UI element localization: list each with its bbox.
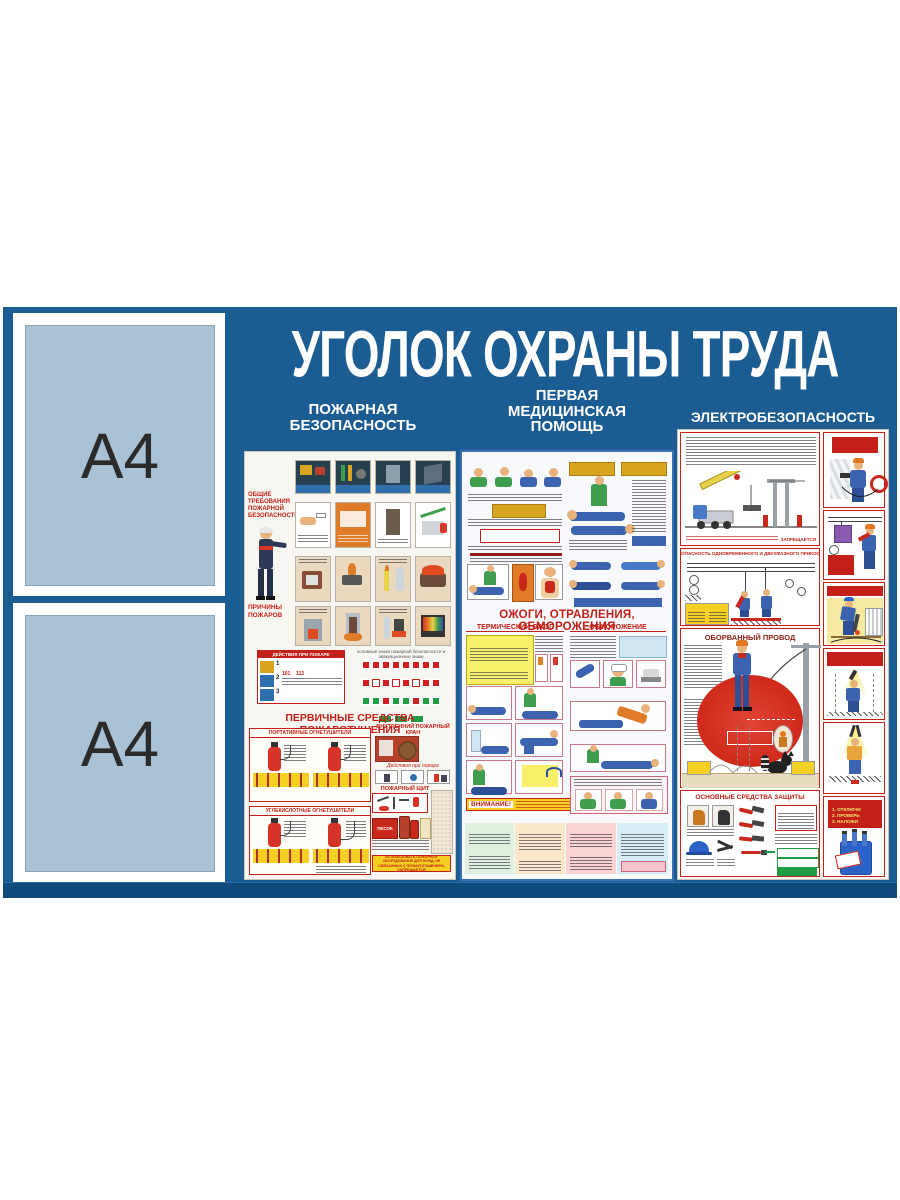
co2-extinguishers-label: УГЛЕКИСЛОТНЫЕ ОГНЕТУШИТЕЛИ: [250, 807, 370, 816]
driller-scene: [828, 457, 882, 505]
glove-captions: [687, 829, 734, 836]
anatomy-picture: [512, 564, 534, 602]
voltage-curve: [709, 755, 759, 775]
medical-highlight-box: [492, 504, 546, 518]
medical-divider-bar: [470, 553, 562, 556]
section-header-fire-line2: БЕЗОПАСНОСТЬ: [262, 418, 444, 434]
frostbite-subheader: [570, 735, 666, 741]
frostbite-info-box: [619, 636, 667, 658]
worker-figure: [858, 527, 880, 573]
broken-wire-label: ОБОРВАННЫЙ ПРОВОД: [681, 633, 819, 642]
fire-barrel: [399, 816, 410, 839]
fire-general-requirements-label: ОБЩИЕ ТРЕБОВАНИЯ ПОЖАРНОЙ БЕЗОПАСНОСТИ: [248, 492, 294, 520]
fire-safety-poster[interactable]: ОБЩИЕ ТРЕБОВАНИЯ ПОЖАРНОЙ БЕЗОПАСНОСТИ П…: [245, 452, 455, 879]
fire-actions-text: [282, 662, 342, 672]
cpr-scene: [569, 478, 629, 536]
frostbite-pic-wide: [570, 744, 666, 772]
panel-warning-header: [832, 437, 878, 453]
section-header-fire-line1: ПОЖАРНАЯ: [262, 402, 444, 418]
board-bottom-strip: [3, 882, 897, 898]
section-header-medical: ПЕРВАЯ МЕДИЦИНСКАЯ ПОМОЩЬ: [475, 388, 659, 435]
info-column-orange: [515, 823, 565, 874]
fire-actions-header: ДЕЙСТВИЯ ПРИ ПОЖАРЕ: [272, 652, 329, 657]
fire-actions-pictogram: [260, 689, 274, 701]
fire-cause-tile: [375, 606, 411, 646]
extinguisher-callouts: [344, 745, 366, 763]
fire-shield-panel: [372, 793, 428, 813]
fire-signs-row-red: [350, 660, 452, 678]
green-tag: [777, 848, 819, 858]
fire-action-pic: [427, 770, 450, 784]
current-meter: [785, 579, 794, 588]
formula-box: [685, 603, 729, 625]
fire-action-step-number: 2: [276, 675, 279, 681]
first-aid-poster[interactable]: ОЖОГИ, ОТРАВЛЕНИЯ, ОБМОРОЖЕНИЯ ТЕРМИЧЕСК…: [462, 452, 672, 879]
airway-steps-pictures: [468, 466, 564, 492]
extinguisher-footnote: [316, 791, 366, 799]
portable-extinguishers-box: ПОРТАТИВНЫЕ ОГНЕТУШИТЕЛИ: [249, 728, 371, 802]
meter-symbol: [829, 545, 839, 555]
crane-caption: ЗАПРЕЩАЕТСЯ: [686, 534, 816, 544]
section-header-electrical: ЭЛЕКТРОБЕЗОПАСНОСТЬ: [676, 410, 890, 426]
fire-signs-row-mixed: [350, 678, 452, 696]
fire-signs-panel: основные знаки пожарной безопасности и э…: [350, 649, 452, 705]
fire-cause-tile: [335, 556, 371, 602]
rules-lines: 1. ОТКЛЮЧИ 2. ПРОВЕРЬ 3. НАЛОЖИ: [832, 807, 861, 825]
rules-box: 1. ОТКЛЮЧИ 2. ПРОВЕРЬ 3. НАЛОЖИ: [828, 800, 882, 828]
fire-rule-tile: [375, 460, 411, 494]
insulated-tools-icons: [739, 807, 773, 863]
section-header-fire: ПОЖАРНАЯ БЕЗОПАСНОСТЬ: [262, 402, 444, 433]
medical-step-header: [569, 462, 615, 476]
danger-sign: [791, 761, 815, 775]
danger-sign: [687, 761, 711, 775]
extinguisher-callouts: [346, 821, 366, 839]
two-phase-danger-panel: ОПАСНОСТЬ ОДНОВРЕМЕННОГО И ДВУХФАЗНОГО П…: [680, 548, 820, 626]
fire-phone-112: 112: [296, 671, 304, 677]
fire-action-step-number: 3: [276, 689, 279, 695]
medical-step-header: [621, 462, 667, 476]
burn-aid-pic: [515, 723, 563, 757]
a4-pocket-top-window: А4: [25, 325, 215, 586]
medical-blue-footer: [574, 598, 662, 607]
info-column-green: [465, 823, 514, 874]
recovery-positions: [569, 556, 667, 596]
two-phase-danger-label: ОПАСНОСТЬ ОДНОВРЕМЕННОГО И ДВУХФАЗНОГО П…: [681, 551, 819, 556]
crane-caption-prohibited: ЗАПРЕЩАЕТСЯ: [781, 537, 816, 542]
burn-aid-pic: [515, 686, 563, 720]
fire-rule-tile: [295, 502, 331, 548]
medical-text: [569, 540, 627, 552]
transformer-box: [834, 525, 852, 543]
step-voltage-tag: [727, 731, 773, 745]
extinguisher-callouts: [284, 745, 306, 763]
hydrant-instructions: [421, 736, 451, 760]
sand-row-captions: [372, 840, 429, 852]
fire-action-pic: [401, 770, 424, 784]
panel-warning-strip: [827, 586, 883, 596]
attention-label: ВНИМАНИЕ!: [469, 801, 513, 808]
protection-means-label: ОСНОВНЫЕ СРЕДСТВА ЗАЩИТЫ: [681, 794, 819, 801]
portable-extinguishers-label: ПОРТАТИВНЫЕ ОГНЕТУШИТЕЛИ: [250, 729, 370, 738]
fire-evacuation-tile: [335, 502, 371, 548]
frostbite-subheader: [570, 692, 666, 698]
fire-barrel: [410, 820, 419, 839]
crane-illustration: [685, 471, 817, 531]
fire-signs-caption: основные знаки пожарной безопасности и э…: [350, 649, 452, 659]
crane-panel: ЗАПРЕЩАЕТСЯ: [680, 432, 820, 546]
pliers-icon: [717, 845, 733, 852]
fire-shield-label: ПОЖАРНЫЙ ЩИТ: [375, 786, 435, 792]
green-tag: [777, 858, 819, 868]
medical-warning-box: [480, 529, 560, 543]
firefighter-figure: [251, 526, 291, 602]
fire-causes-label: ПРИЧИНЫ ПОЖАРОВ: [248, 604, 294, 619]
grounding-rules-panel: 1. ОТКЛЮЧИ 2. ПРОВЕРЬ 3. НАЛОЖИ: [823, 796, 885, 877]
extinguisher-usage-strip: [313, 849, 369, 863]
fire-actions-pictogram: [260, 675, 274, 687]
medical-scale-marks: [470, 558, 562, 562]
frostbite-pic: [570, 660, 600, 688]
fire-rule-tile: [295, 460, 331, 494]
fire-cause-tile: [295, 606, 331, 646]
fire-actions-pictogram: [260, 661, 274, 673]
section-header-medical-line3: ПОМОЩЬ: [475, 419, 659, 435]
fire-cause-tile: [335, 606, 371, 646]
current-meter: [797, 587, 806, 596]
crane-panel-text: [686, 437, 816, 467]
fire-cause-tile: [295, 556, 331, 602]
fire-rule-tile: [415, 460, 451, 494]
burn-text: [535, 636, 563, 652]
info-column-pink: [566, 823, 616, 874]
extinguisher-callouts: [284, 821, 306, 839]
fire-bottom-warning-text: ИСПОЛЬЗОВАТЬ ПОЖАРНОЕ ОБОРУДОВАНИЕ ДЛЯ Н…: [374, 855, 449, 872]
indoor-hydrant-label: ВНУТРЕННИЙ ПОЖАРНЫЙ КРАН: [375, 724, 451, 736]
coil-symbol: [689, 585, 699, 595]
extinguisher-usage-strip: [253, 773, 309, 787]
table-note: [775, 834, 817, 846]
fire-rule-tile: [415, 502, 451, 548]
panel-warning-box: [828, 555, 854, 575]
torso-organs-picture: [535, 564, 563, 600]
burn-symptoms-box: [466, 635, 534, 685]
fire-cause-tile: [415, 606, 451, 646]
sand-box-label: ПЕСОК: [377, 826, 393, 831]
burn-aid-pic: [515, 760, 563, 794]
frostbite-pic: [603, 660, 633, 688]
burn-aid-pic: [466, 686, 512, 720]
worker-figure: [759, 589, 773, 617]
frostbite-pic-wide: [570, 701, 666, 731]
platform-hatch: [731, 621, 781, 625]
standing-worker-figure: [729, 643, 755, 713]
thermal-burn-label: ТЕРМИЧЕСКИЙ ОЖОГ: [466, 624, 564, 632]
medical-text: [468, 519, 562, 527]
warm-drink-box: [570, 776, 668, 814]
ground-symbol: [685, 595, 701, 601]
step-voltage-text: [684, 645, 722, 689]
extinguisher-footnote: [316, 866, 366, 873]
frostbite-pic: [636, 660, 666, 688]
pliers-caption: [717, 859, 735, 866]
dielectric-glove-icon: [687, 805, 709, 827]
sand-texture-panel: [431, 790, 453, 854]
radius-arrow: [747, 719, 795, 720]
green-arrow: [765, 851, 775, 853]
green-tag-solid: [777, 868, 817, 876]
medical-blue-box: [632, 536, 666, 546]
worker-figure: [737, 591, 751, 617]
burn-degree-pics: [535, 654, 563, 682]
arc-flash-panel: [823, 722, 885, 794]
arc-flash-scene: [827, 726, 883, 786]
sand-box: ПЕСОК: [372, 818, 398, 839]
co2-extinguishers-box: УГЛЕКИСЛОТНЫЕ ОГНЕТУШИТЕЛИ: [249, 806, 371, 875]
inset-figure-oval: [773, 725, 793, 753]
fire-bottom-warning: ИСПОЛЬЗОВАТЬ ПОЖАРНОЕ ОБОРУДОВАНИЕ ДЛЯ Н…: [372, 855, 451, 872]
extinguisher-usage-strip: [313, 773, 369, 787]
board-title: УГОЛОК ОХРАНЫ ТРУДА: [294, 312, 835, 395]
section-header-electrical-line1: ЭЛЕКТРОБЕЗОПАСНОСТЬ: [676, 410, 890, 426]
rubber-glove-icon: [712, 805, 734, 827]
a4-pocket-top[interactable]: А4: [13, 313, 225, 596]
fire-action-step-number: 1: [276, 661, 279, 667]
overhead-cable-panel: [823, 648, 885, 720]
fire-rule-tile: [375, 502, 411, 548]
frostbite-label: ОБМОРОЖЕНИЕ: [570, 624, 666, 632]
fire-cause-tile: [415, 556, 451, 602]
a4-label-top: А4: [81, 419, 159, 493]
rule-line-3: 3. НАЛОЖИ: [832, 819, 861, 825]
fire-canister: [420, 818, 431, 839]
transformer-panel: [823, 510, 885, 580]
panel-warning-strip: [827, 652, 883, 666]
extinguisher-footnote: [256, 791, 306, 799]
fire-actions-box: ДЕЙСТВИЯ ПРИ ПОЖАРЕ 1 2 3 101 112: [257, 650, 345, 704]
section-header-medical-line2: МЕДИЦИНСКАЯ: [475, 404, 659, 420]
drill-wall-panel: [823, 432, 885, 508]
electrical-safety-poster[interactable]: ЗАПРЕЩАЕТСЯ ОПАСНОСТЬ ОДНОВРЕМЕННОГО И Д…: [678, 430, 888, 879]
jackhammer-panel: [823, 582, 885, 646]
grounding-device: [836, 831, 874, 875]
fire-rule-tile: [335, 460, 371, 494]
hydrant-panel: [375, 736, 419, 762]
medical-text: [468, 546, 562, 552]
overhead-scene: [827, 668, 883, 716]
extinguisher-usage-strip: [253, 849, 309, 863]
burn-aid-pic: [466, 723, 512, 757]
coil-symbol: [689, 575, 699, 585]
frostbite-text: [570, 636, 616, 658]
fire-phone-101: 101: [282, 671, 290, 677]
cpr-picture: [467, 564, 509, 600]
hydrant-subcaption: Действия при пожаре: [375, 763, 451, 769]
protection-means-panel: ОСНОВНЫЕ СРЕДСТВА ЗАЩИТЫ: [680, 790, 820, 877]
a4-pocket-bottom[interactable]: А4: [13, 603, 225, 882]
info-column-blue: [617, 823, 668, 874]
medical-text: [468, 494, 562, 502]
fire-cause-tile: [375, 556, 411, 602]
voltage-table: [775, 805, 817, 831]
a4-pocket-bottom-window: А4: [25, 615, 215, 872]
section-header-medical-line1: ПЕРВАЯ: [475, 388, 659, 404]
a4-label-bottom: А4: [81, 707, 159, 781]
fire-actions-text: [282, 690, 342, 700]
fire-action-pic: [375, 770, 398, 784]
broken-wire-panel: ОБОРВАННЫЙ ПРОВОД: [680, 628, 820, 788]
helmet-caption: [686, 859, 714, 866]
jackhammer-scene: [827, 598, 883, 644]
hard-hat-brim: [686, 852, 712, 855]
burn-aid-pic: [466, 760, 512, 794]
fire-actions-text: [282, 678, 342, 687]
ground-strip: [682, 773, 819, 788]
extinguisher-footnote: [256, 866, 306, 873]
cpr-side-notes: [632, 480, 666, 532]
